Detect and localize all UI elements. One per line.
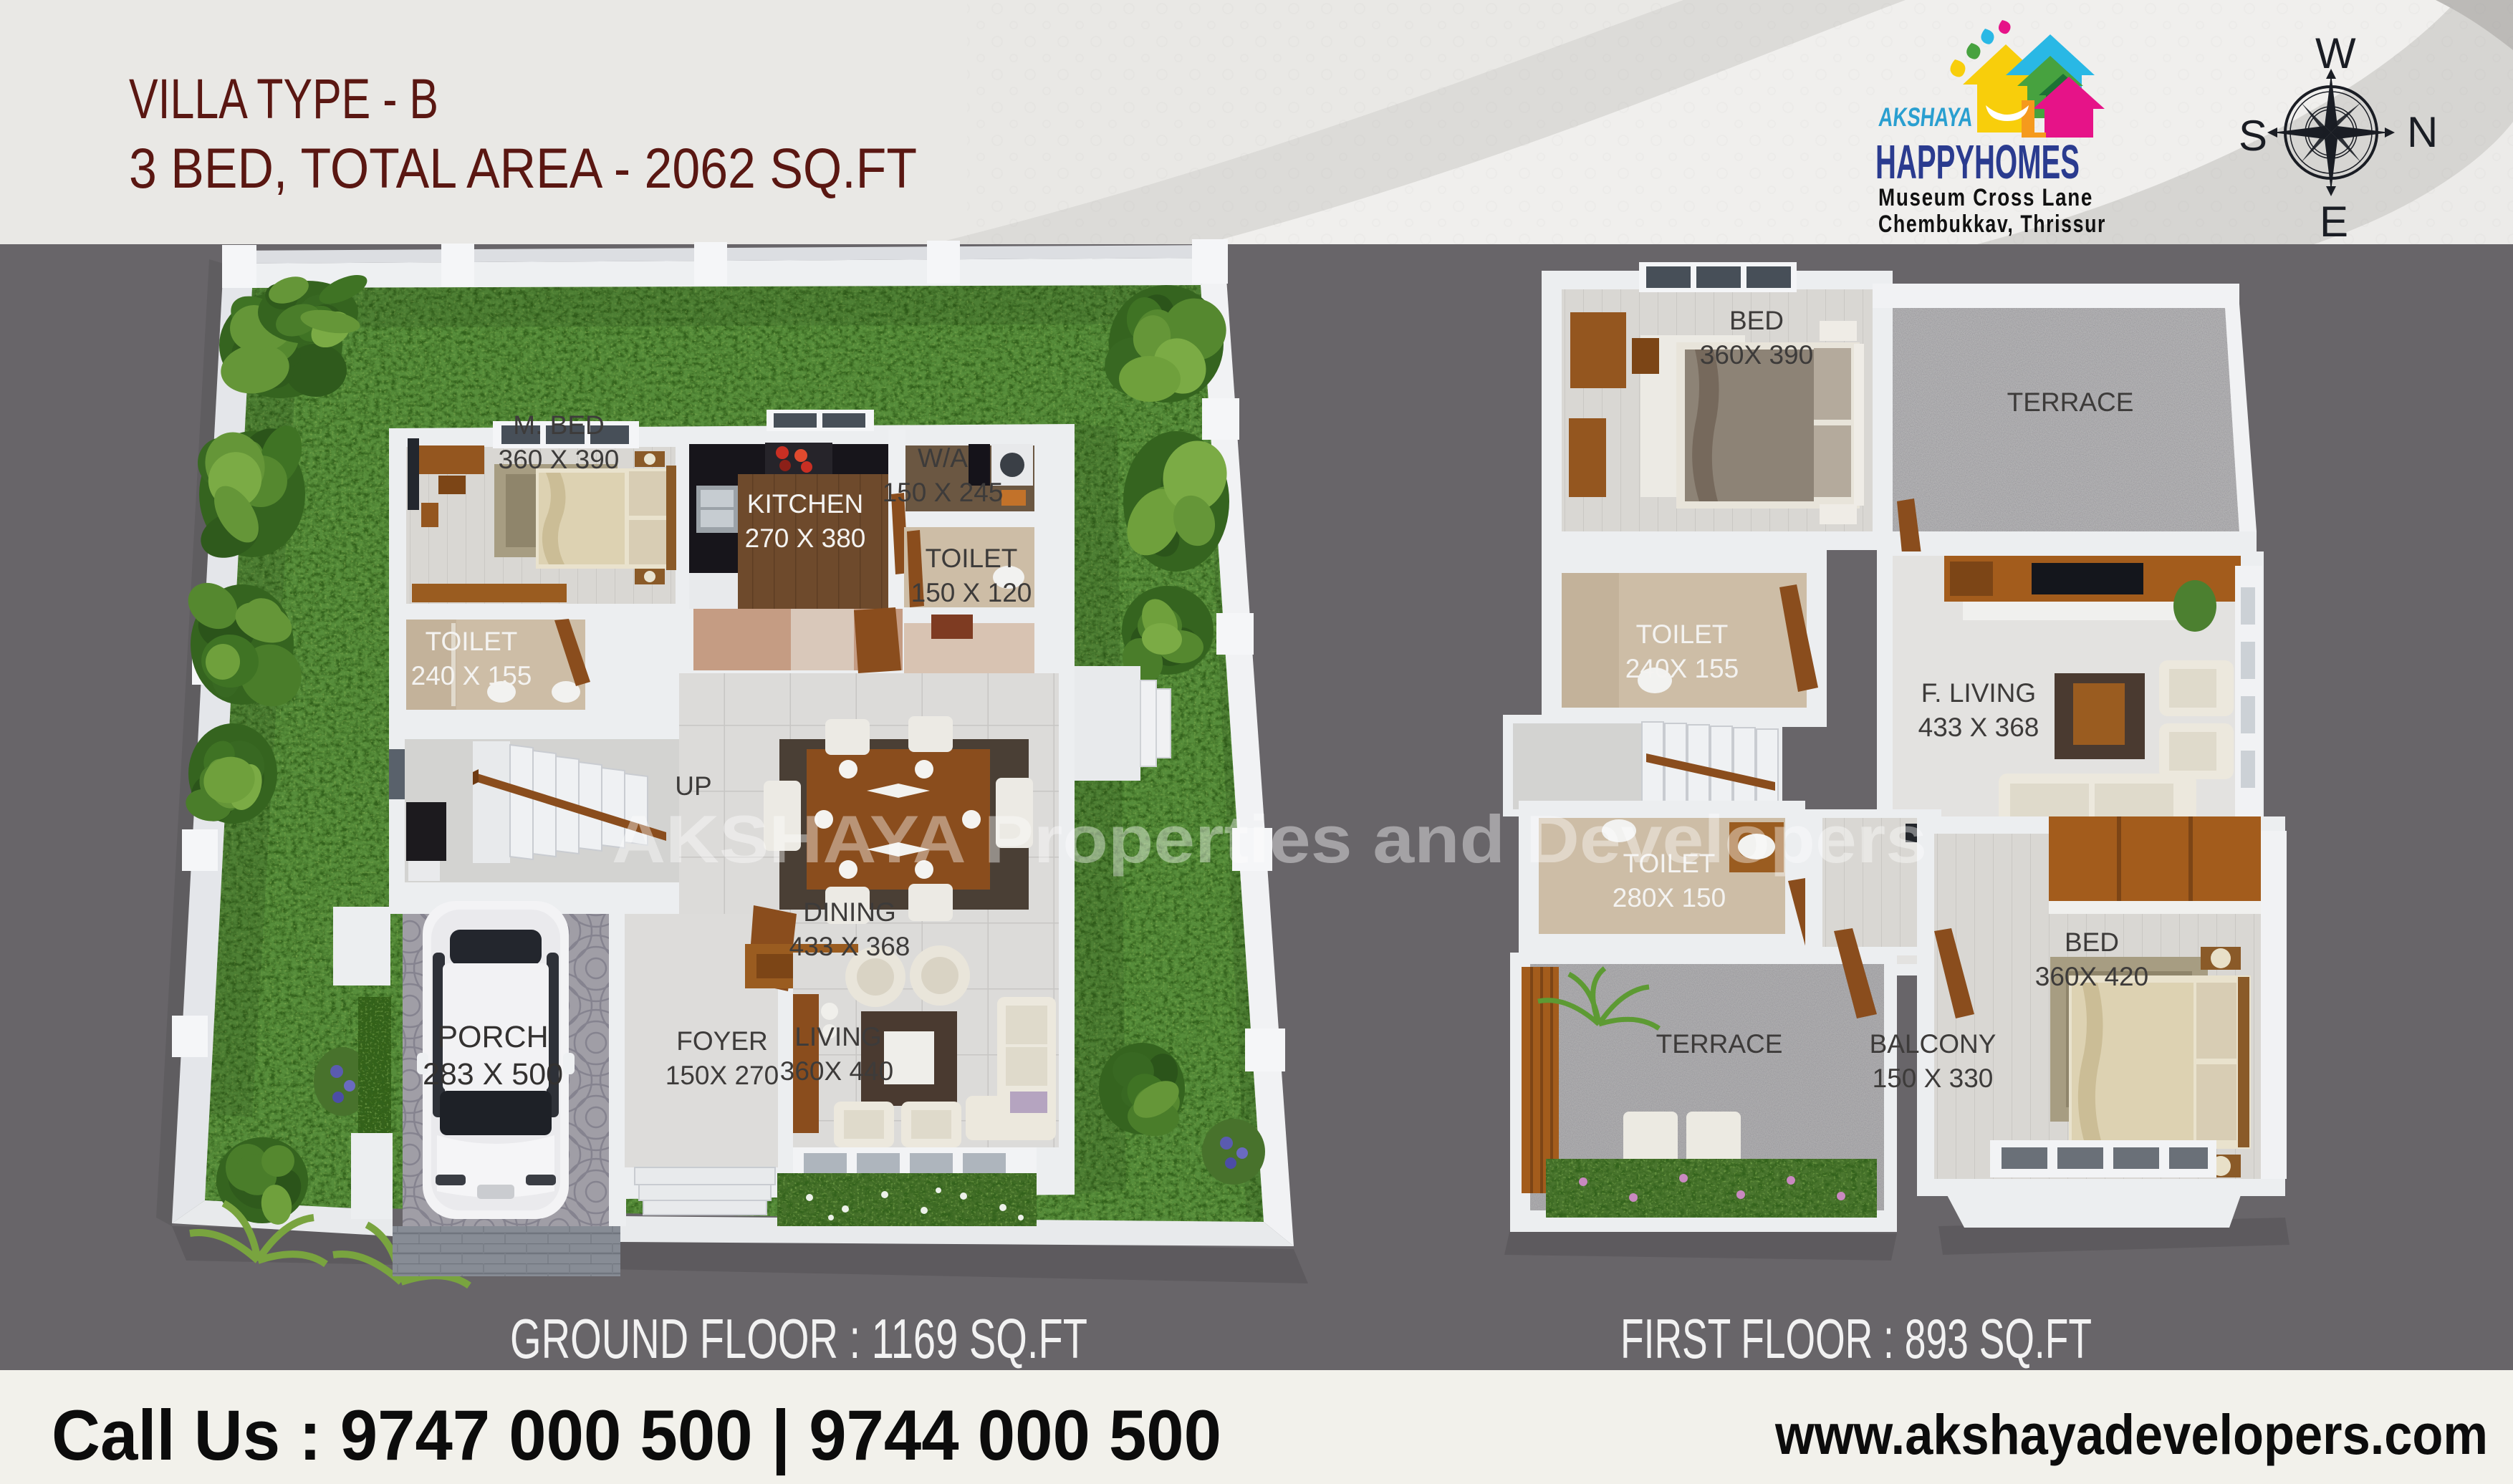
svg-text:280X 150: 280X 150	[1613, 883, 1726, 912]
svg-text:N: N	[2407, 108, 2438, 156]
svg-text:433 X 368: 433 X 368	[789, 932, 910, 961]
svg-text:TOILET: TOILET	[1636, 620, 1729, 649]
svg-text:150 X 330: 150 X 330	[1873, 1064, 1994, 1093]
svg-text:283 X 500: 283 X 500	[423, 1057, 563, 1092]
svg-text:150X 270: 150X 270	[666, 1061, 779, 1090]
svg-text:S: S	[2239, 112, 2267, 160]
svg-text:E: E	[2320, 198, 2348, 246]
svg-text:PORCH: PORCH	[437, 1020, 548, 1054]
svg-text:240X 155: 240X 155	[1625, 654, 1739, 683]
svg-text:DINING: DINING	[803, 897, 896, 927]
svg-text:150 X 245: 150 X 245	[883, 478, 1004, 507]
svg-text:W/A: W/A	[918, 443, 968, 473]
svg-text:270 X 380: 270 X 380	[745, 524, 866, 553]
svg-text:AKSHAYA Properties and Develop: AKSHAYA Properties and Developers	[612, 801, 1927, 877]
svg-text:TOILET: TOILET	[426, 627, 518, 656]
svg-text:3 BED, TOTAL AREA - 2062 SQ.FT: 3 BED, TOTAL AREA - 2062 SQ.FT	[129, 136, 917, 200]
svg-text:360X 420: 360X 420	[2035, 962, 2148, 991]
svg-text:BED: BED	[2065, 927, 2119, 957]
svg-text:BED: BED	[1729, 306, 1784, 335]
svg-text:BALCONY: BALCONY	[1870, 1029, 1997, 1059]
svg-text:GROUND FLOOR : 1169 SQ.FT: GROUND FLOOR : 1169 SQ.FT	[510, 1307, 1087, 1370]
svg-text:240 X 155: 240 X 155	[411, 661, 532, 690]
svg-text:FIRST FLOOR : 893 SQ.FT: FIRST FLOOR : 893 SQ.FT	[1620, 1307, 2092, 1370]
svg-text:M. BED: M. BED	[513, 410, 604, 440]
svg-text:KITCHEN: KITCHEN	[747, 489, 863, 519]
svg-text:TOILET: TOILET	[926, 544, 1018, 573]
svg-text:FOYER: FOYER	[676, 1026, 767, 1056]
svg-text:W: W	[2315, 29, 2356, 77]
svg-text:150 X 120: 150 X 120	[911, 578, 1032, 607]
svg-text:VILLA TYPE - B: VILLA TYPE - B	[129, 67, 438, 130]
svg-text:Call Us : 9747 000 500 | 9744: Call Us : 9747 000 500 | 9744 000 500	[52, 1395, 1221, 1476]
svg-text:360X 440: 360X 440	[780, 1056, 893, 1086]
svg-text:www.akshayadevelopers.com: www.akshayadevelopers.com	[1774, 1402, 2488, 1466]
svg-text:LIVING: LIVING	[794, 1022, 881, 1051]
svg-text:AKSHAYA: AKSHAYA	[1878, 102, 1974, 132]
svg-text:433 X 368: 433 X 368	[1918, 713, 2039, 742]
svg-text:Chembukkav, Thrissur: Chembukkav, Thrissur	[1878, 211, 2106, 238]
svg-text:F. LIVING: F. LIVING	[1921, 678, 2036, 708]
svg-text:HAPPYHOMES: HAPPYHOMES	[1875, 135, 2080, 189]
svg-text:TERRACE: TERRACE	[1656, 1029, 1783, 1059]
svg-text:UP: UP	[675, 771, 711, 801]
svg-text:360X 390: 360X 390	[1700, 340, 1813, 370]
svg-text:360 X 390: 360 X 390	[499, 445, 620, 474]
svg-text:Museum Cross Lane: Museum Cross Lane	[1878, 184, 2093, 211]
svg-text:TERRACE: TERRACE	[2007, 387, 2134, 417]
